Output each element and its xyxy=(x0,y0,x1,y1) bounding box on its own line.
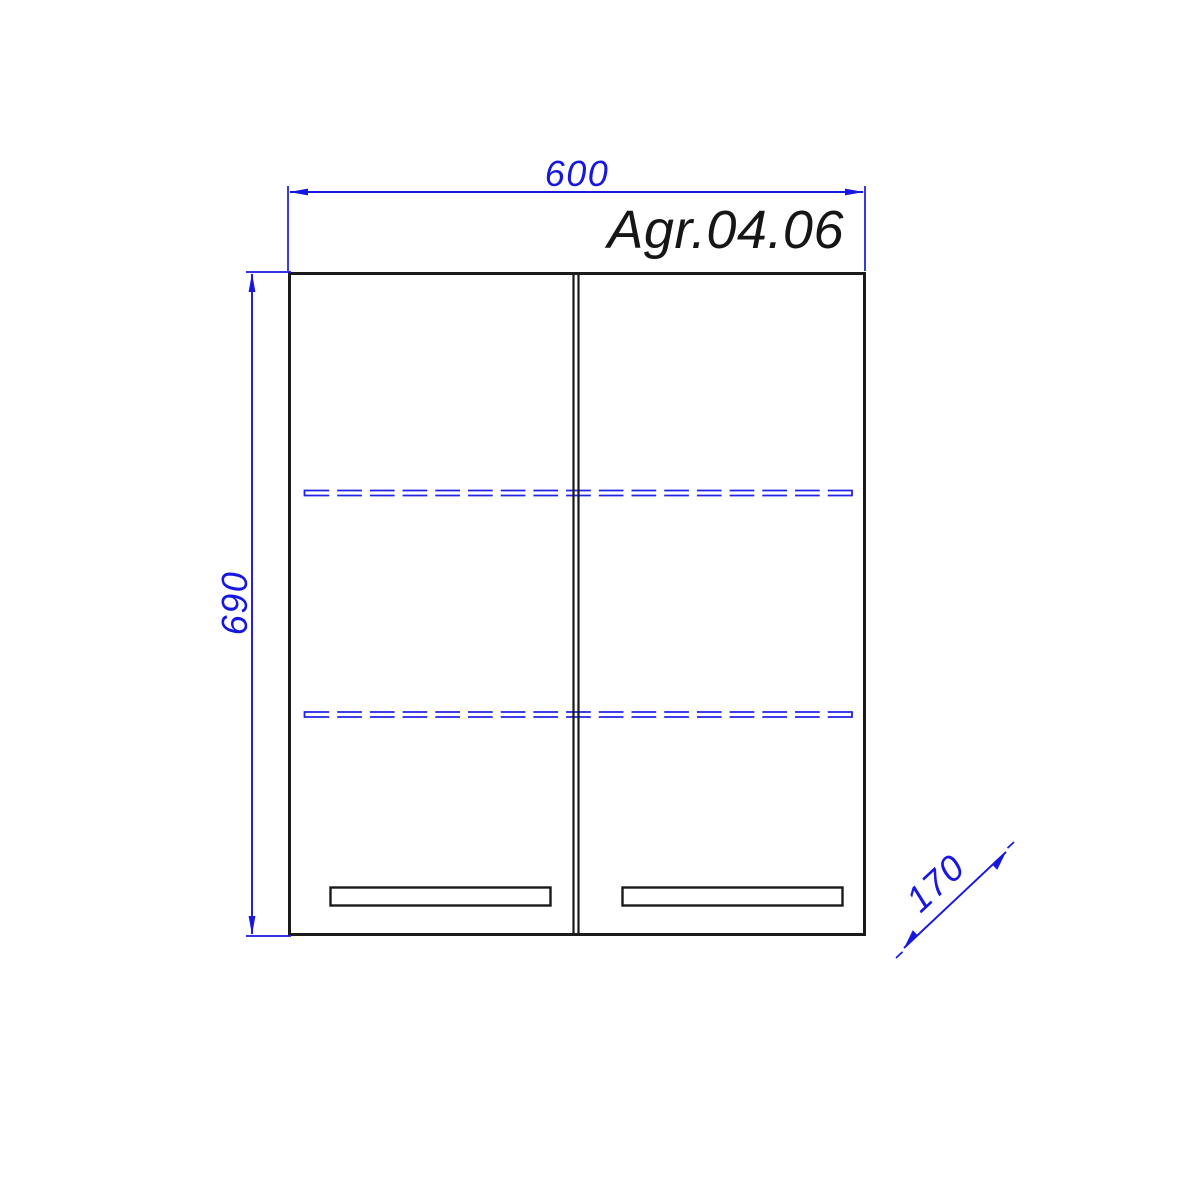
width-dimension-label: 600 xyxy=(545,153,610,194)
depth-tick-lower xyxy=(896,952,903,958)
technical-drawing-page: 600 690 170 Agr.04.06 xyxy=(0,0,1200,1200)
left-door-handle xyxy=(331,888,551,906)
depth-tick-upper xyxy=(1008,842,1015,848)
right-door-handle xyxy=(623,888,843,906)
depth-dimension: 170 xyxy=(896,842,1014,958)
depth-arrow-upper-icon xyxy=(993,852,1007,870)
height-arrow-top-icon xyxy=(249,273,256,292)
model-code-label: Agr.04.06 xyxy=(604,200,844,260)
height-dimension: 690 xyxy=(214,272,291,936)
height-dimension-label: 690 xyxy=(214,571,255,636)
cabinet-front-view xyxy=(290,274,865,935)
cad-canvas: 600 690 170 Agr.04.06 xyxy=(0,0,1200,1200)
height-arrow-bottom-icon xyxy=(249,916,256,935)
depth-dimension-label: 170 xyxy=(898,846,973,920)
cabinet-outline xyxy=(290,274,865,935)
width-arrow-right-icon xyxy=(845,189,864,196)
depth-arrow-lower-icon xyxy=(904,930,918,948)
width-arrow-left-icon xyxy=(289,189,308,196)
